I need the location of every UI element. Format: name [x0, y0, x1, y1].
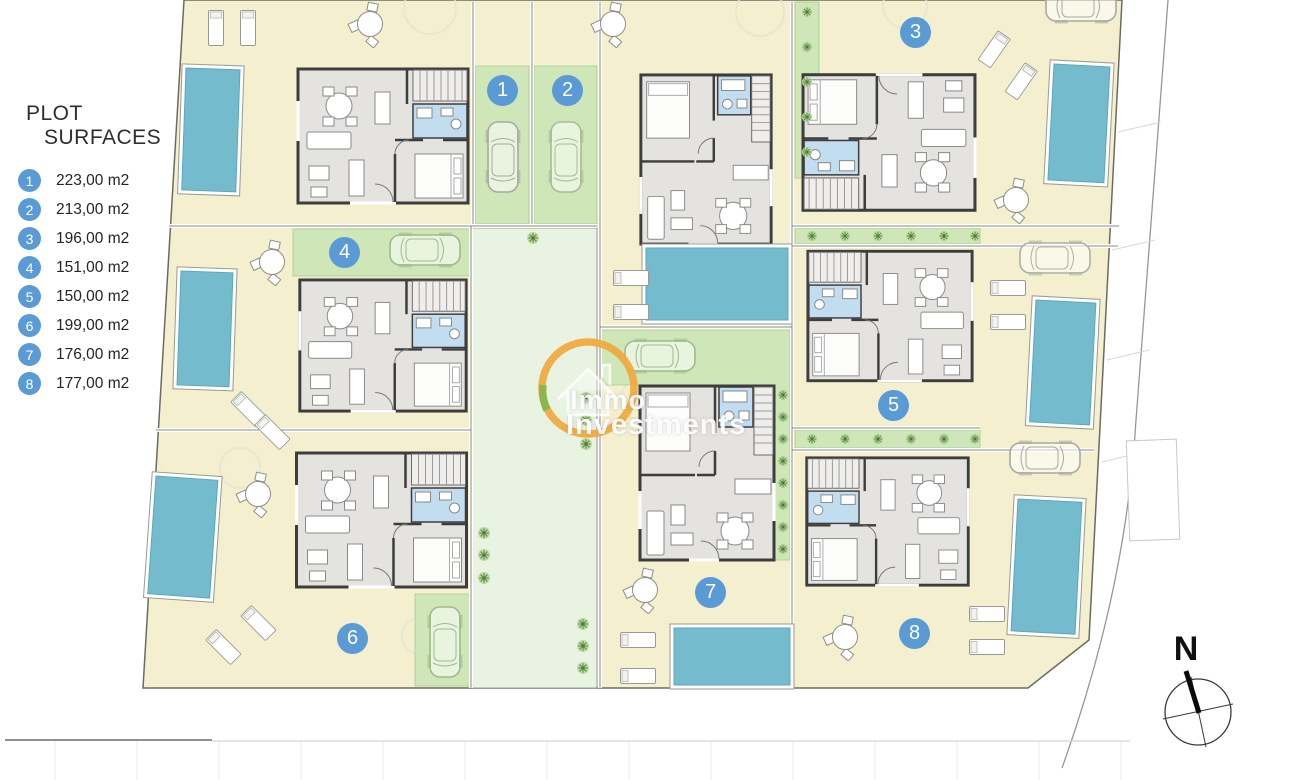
legend-item: 4 151,00 m2: [18, 253, 161, 282]
villa-8-floorplan: [807, 458, 970, 587]
plot-surfaces-legend: PLOT SURFACES 1 223,00 m2 2 213,00 m2 3 …: [18, 102, 161, 398]
legend-plot-area: 177,00 m2: [56, 375, 129, 393]
compass-north-label: N: [1166, 630, 1206, 669]
legend-plot-badge: 5: [18, 285, 41, 308]
legend-item: 1 223,00 m2: [18, 166, 161, 195]
legend-plot-area: 213,00 m2: [56, 201, 129, 219]
car-plot-3: [1046, 0, 1116, 24]
pool-2: [642, 244, 792, 324]
legend-item: 2 213,00 m2: [18, 195, 161, 224]
pool-3: [1044, 60, 1114, 187]
villa-6-floorplan: [295, 453, 467, 589]
villa-1-floorplan: [297, 69, 469, 205]
car-plot-4: [390, 233, 460, 268]
plot-marker-5: 5: [878, 390, 909, 421]
legend-plot-area: 223,00 m2: [56, 172, 129, 190]
villa-4-floorplan: [298, 280, 466, 413]
legend-plot-badge: 3: [18, 227, 41, 250]
car-plot-8: [1010, 441, 1080, 476]
pool-6: [143, 472, 222, 603]
plot-marker-8: 8: [899, 618, 930, 649]
legend-plot-badge: 7: [18, 343, 41, 366]
plot-marker-6: 6: [337, 623, 368, 654]
compass: [1163, 671, 1233, 747]
legend-item: 5 150,00 m2: [18, 282, 161, 311]
legend-plot-badge: 6: [18, 314, 41, 337]
plot-marker-4: 4: [329, 237, 360, 268]
company-watermark: Immo Investments: [530, 335, 790, 450]
legend-title-line1: PLOT: [26, 102, 161, 126]
legend-plot-badge: 4: [18, 256, 41, 279]
legend-plot-area: 151,00 m2: [56, 259, 129, 277]
plot-marker-1: 1: [487, 75, 518, 106]
villa-2-floorplan: [639, 75, 772, 246]
pool-7: [670, 624, 794, 689]
legend-plot-badge: 2: [18, 198, 41, 221]
car-parking-2: [549, 122, 584, 192]
legend-item: 3 196,00 m2: [18, 224, 161, 253]
legend-plot-badge: 8: [18, 372, 41, 395]
watermark-text-line2: Investments: [566, 409, 746, 442]
north-arrow: [1186, 671, 1199, 713]
legend-plot-badge: 1: [18, 169, 41, 192]
communal-garden-strip: [472, 228, 597, 688]
legend-item: 7 176,00 m2: [18, 340, 161, 369]
legend-item: 6 199,00 m2: [18, 311, 161, 340]
legend-plot-area: 196,00 m2: [56, 230, 129, 248]
site-plan-page: PLOT SURFACES 1 223,00 m2 2 213,00 m2 3 …: [0, 0, 1290, 780]
villa-5-floorplan: [808, 251, 974, 382]
pool-5: [1025, 296, 1100, 429]
legend-title-line2: SURFACES: [44, 126, 161, 150]
villa-3-floorplan: [803, 73, 976, 210]
pool-4: [173, 267, 237, 391]
plot-marker-7: 7: [695, 577, 726, 608]
plot-marker-3: 3: [900, 17, 931, 48]
car-parking-1: [486, 122, 521, 192]
legend-plot-area: 176,00 m2: [56, 346, 129, 364]
plot-marker-2: 2: [552, 75, 583, 106]
legend-item: 8 177,00 m2: [18, 369, 161, 398]
legend-plot-area: 150,00 m2: [56, 288, 129, 306]
car-plot-5: [1020, 241, 1090, 276]
legend-plot-area: 199,00 m2: [56, 317, 129, 335]
pool-1: [178, 64, 244, 196]
car-plot-6: [428, 607, 463, 677]
pool-8: [1007, 495, 1086, 639]
